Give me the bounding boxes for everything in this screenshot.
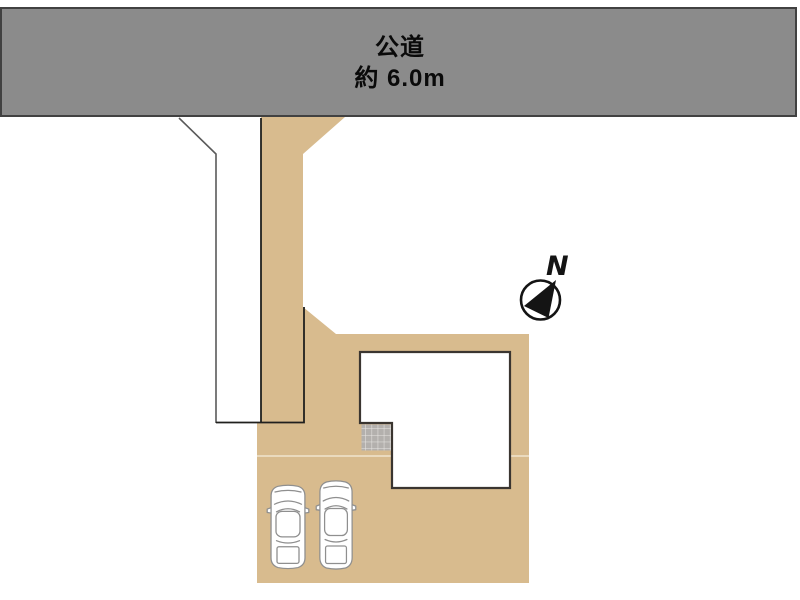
site-plan-drawing: N bbox=[0, 0, 800, 600]
site-plan-canvas: N 公道 約 6.0m bbox=[0, 0, 800, 600]
parked-car-2 bbox=[316, 481, 356, 569]
north-compass: N bbox=[521, 251, 569, 320]
parked-car-1 bbox=[267, 485, 309, 568]
neighbor-boundary-line bbox=[179, 118, 216, 423]
north-label: N bbox=[546, 251, 569, 282]
entrance-porch-grid-overlay bbox=[362, 425, 392, 451]
entrance-porch bbox=[362, 425, 392, 451]
public-road-surface bbox=[1, 8, 796, 116]
